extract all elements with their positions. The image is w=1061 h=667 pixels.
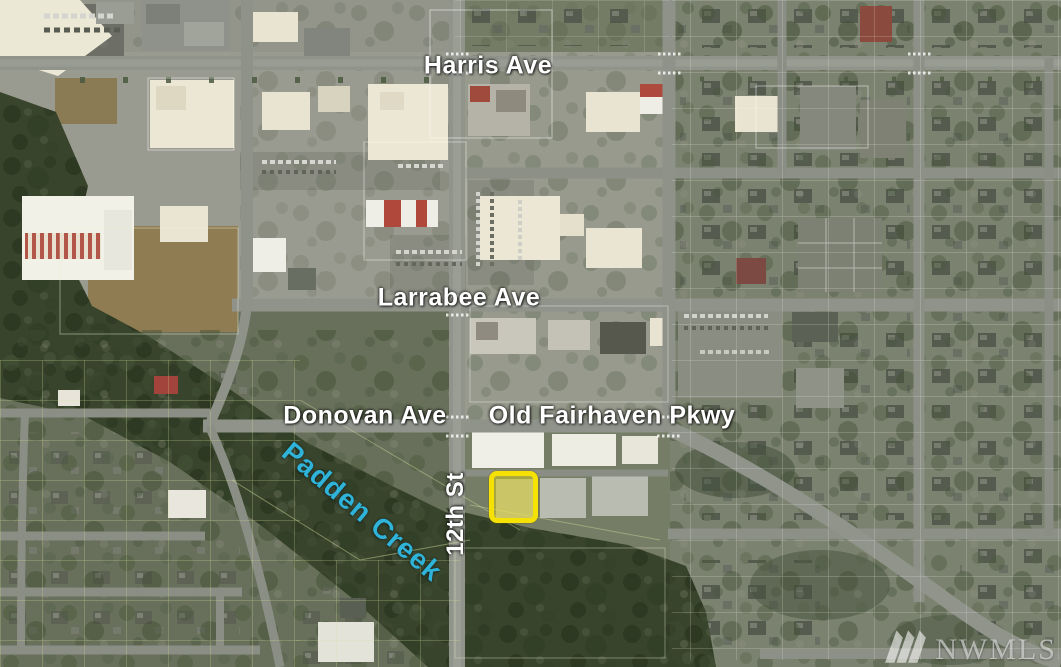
street-label-harris-ave: Harris Ave: [424, 52, 552, 81]
aerial-basemap: [0, 0, 1061, 667]
aerial-map-image: Harris Ave Larrabee Ave Donovan Ave Old …: [0, 0, 1061, 667]
street-label-larrabee-ave: Larrabee Ave: [378, 284, 541, 313]
nwmls-mountains-icon: [884, 626, 930, 664]
street-label-12th-st: 12th St: [442, 472, 470, 556]
street-label-donovan-ave: Donovan Ave: [283, 402, 446, 431]
watermark: NWMLS: [884, 626, 1057, 665]
street-label-old-fairhaven-pkwy: Old Fairhaven Pkwy: [489, 402, 736, 431]
watermark-text: NWMLS: [935, 635, 1057, 665]
subject-property-highlight: [489, 471, 538, 523]
